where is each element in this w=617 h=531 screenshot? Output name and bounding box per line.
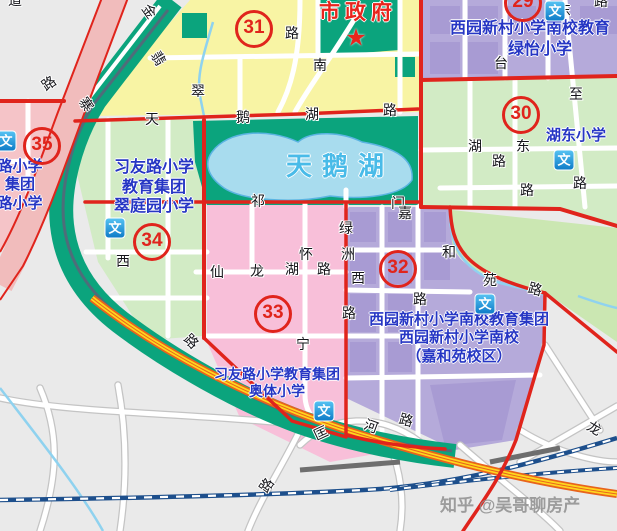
map-canvas (0, 0, 617, 531)
green-square-2 (182, 13, 207, 38)
school-district-map-page: { "page_title": "合肥政务区学区地图", "watermark"… (0, 0, 617, 531)
